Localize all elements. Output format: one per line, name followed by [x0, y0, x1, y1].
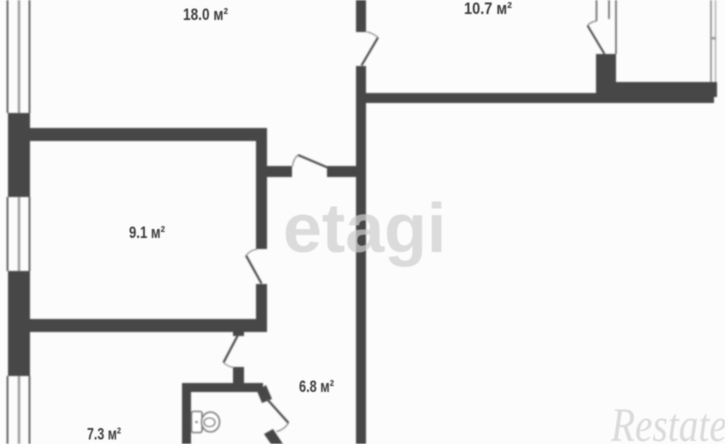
svg-text:7.3 м²: 7.3 м²: [87, 425, 121, 444]
svg-text:18.0 м²: 18.0 м²: [183, 5, 228, 24]
svg-text:Restate: Restate: [610, 399, 725, 444]
svg-text:6.8 м²: 6.8 м²: [299, 377, 334, 396]
svg-text:10.7 м²: 10.7 м²: [464, 0, 512, 18]
svg-text:9.1 м²: 9.1 м²: [129, 223, 165, 242]
svg-text:etagi: etagi: [283, 189, 446, 267]
